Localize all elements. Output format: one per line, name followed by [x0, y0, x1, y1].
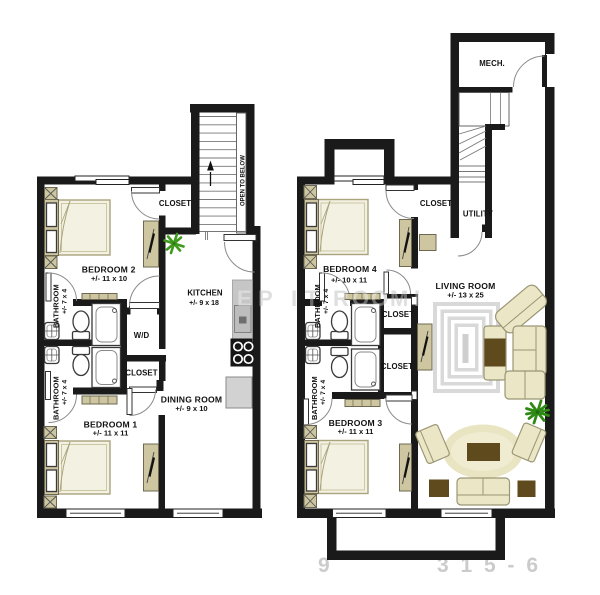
svg-text:MECH.: MECH.: [479, 59, 505, 68]
svg-text:+/- 7 x 4: +/- 7 x 4: [62, 380, 69, 405]
svg-text:+/- 9 x 10: +/- 9 x 10: [175, 404, 207, 413]
svg-text:P: P: [258, 286, 273, 311]
svg-text:+/- 7 x 4: +/- 7 x 4: [323, 289, 330, 314]
svg-text:I: I: [291, 286, 297, 311]
svg-text:OPEN TO BELOW: OPEN TO BELOW: [241, 155, 247, 206]
svg-text:CLOSET: CLOSET: [159, 199, 191, 208]
svg-text:LIVING ROOM: LIVING ROOM: [436, 281, 496, 291]
svg-text:+/- 11 x 11: +/- 11 x 11: [93, 429, 129, 438]
svg-text:M: M: [390, 286, 408, 311]
svg-text:BEDROOM 2: BEDROOM 2: [82, 265, 136, 275]
svg-text:BEDROOM 4: BEDROOM 4: [323, 264, 377, 274]
svg-text:BATHROOM: BATHROOM: [52, 376, 61, 420]
svg-text:+/- 13 x 25: +/- 13 x 25: [447, 291, 484, 300]
svg-text:CLOSET: CLOSET: [125, 369, 157, 378]
svg-text:+/- 11 x 10: +/- 11 x 10: [91, 274, 127, 283]
svg-text:+/- 11 x 11: +/- 11 x 11: [338, 427, 374, 436]
svg-text:T: T: [305, 286, 319, 311]
svg-text:DINING ROOM: DINING ROOM: [161, 395, 222, 405]
svg-text:O: O: [371, 286, 388, 311]
svg-text:+/- 9 x 18: +/- 9 x 18: [189, 300, 219, 307]
svg-text:UTILITY: UTILITY: [463, 210, 494, 219]
svg-text:I: I: [414, 286, 420, 311]
svg-text:BATHROOM: BATHROOM: [52, 284, 61, 328]
svg-text:CLOSET: CLOSET: [381, 362, 413, 371]
svg-text:BATHROOM: BATHROOM: [310, 376, 319, 420]
svg-text:W/D: W/D: [134, 331, 150, 340]
svg-text:E: E: [237, 286, 252, 311]
svg-text:CLOSET: CLOSET: [382, 310, 414, 319]
svg-text:+/- 7 x 4: +/- 7 x 4: [320, 380, 327, 405]
svg-text:O: O: [352, 286, 369, 311]
svg-text:+/- 7 x 4: +/- 7 x 4: [62, 289, 69, 314]
svg-text:R: R: [333, 286, 349, 311]
svg-text:CLOSET: CLOSET: [420, 199, 452, 208]
svg-text:+/- 10 x 11: +/- 10 x 11: [331, 276, 368, 285]
svg-text:KITCHEN: KITCHEN: [187, 289, 223, 298]
